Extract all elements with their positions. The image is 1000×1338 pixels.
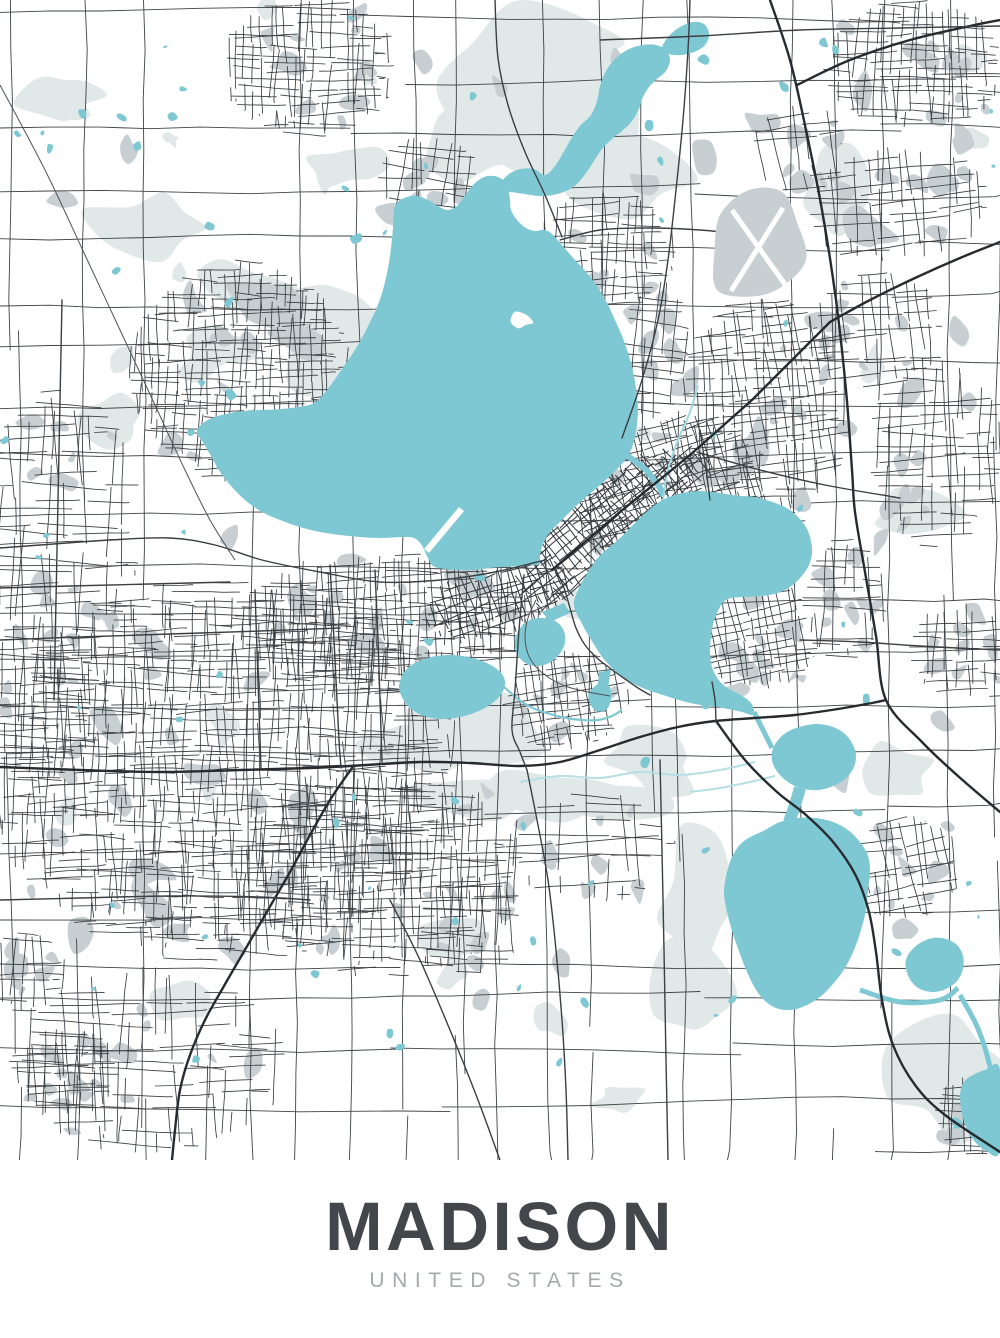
svg-text:MADISON: MADISON <box>325 1188 675 1265</box>
svg-text:UNITED STATES: UNITED STATES <box>369 1269 630 1292</box>
